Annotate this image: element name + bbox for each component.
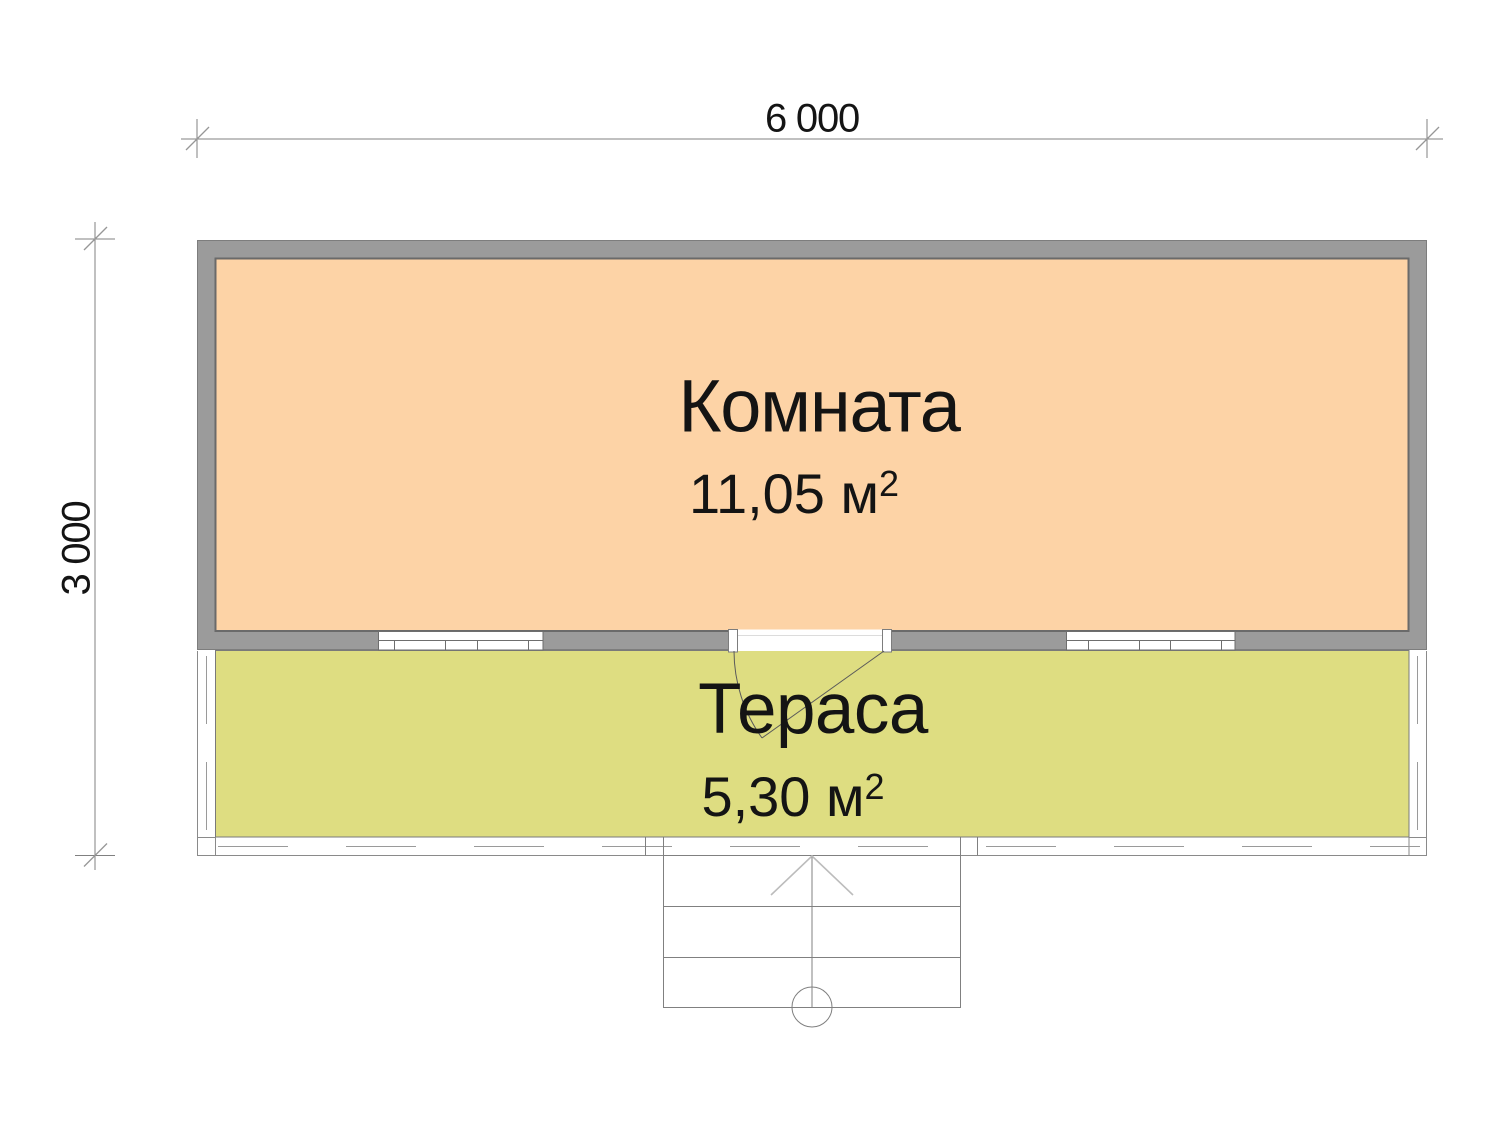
svg-text:3 000: 3 000 [55,501,99,595]
svg-text:11,05 м2: 11,05 м2 [689,462,899,525]
svg-text:6 000: 6 000 [765,97,859,141]
svg-text:Тераса: Тераса [698,670,929,749]
svg-text:Комната: Комната [678,365,961,448]
svg-text:5,30 м2: 5,30 м2 [701,765,884,828]
